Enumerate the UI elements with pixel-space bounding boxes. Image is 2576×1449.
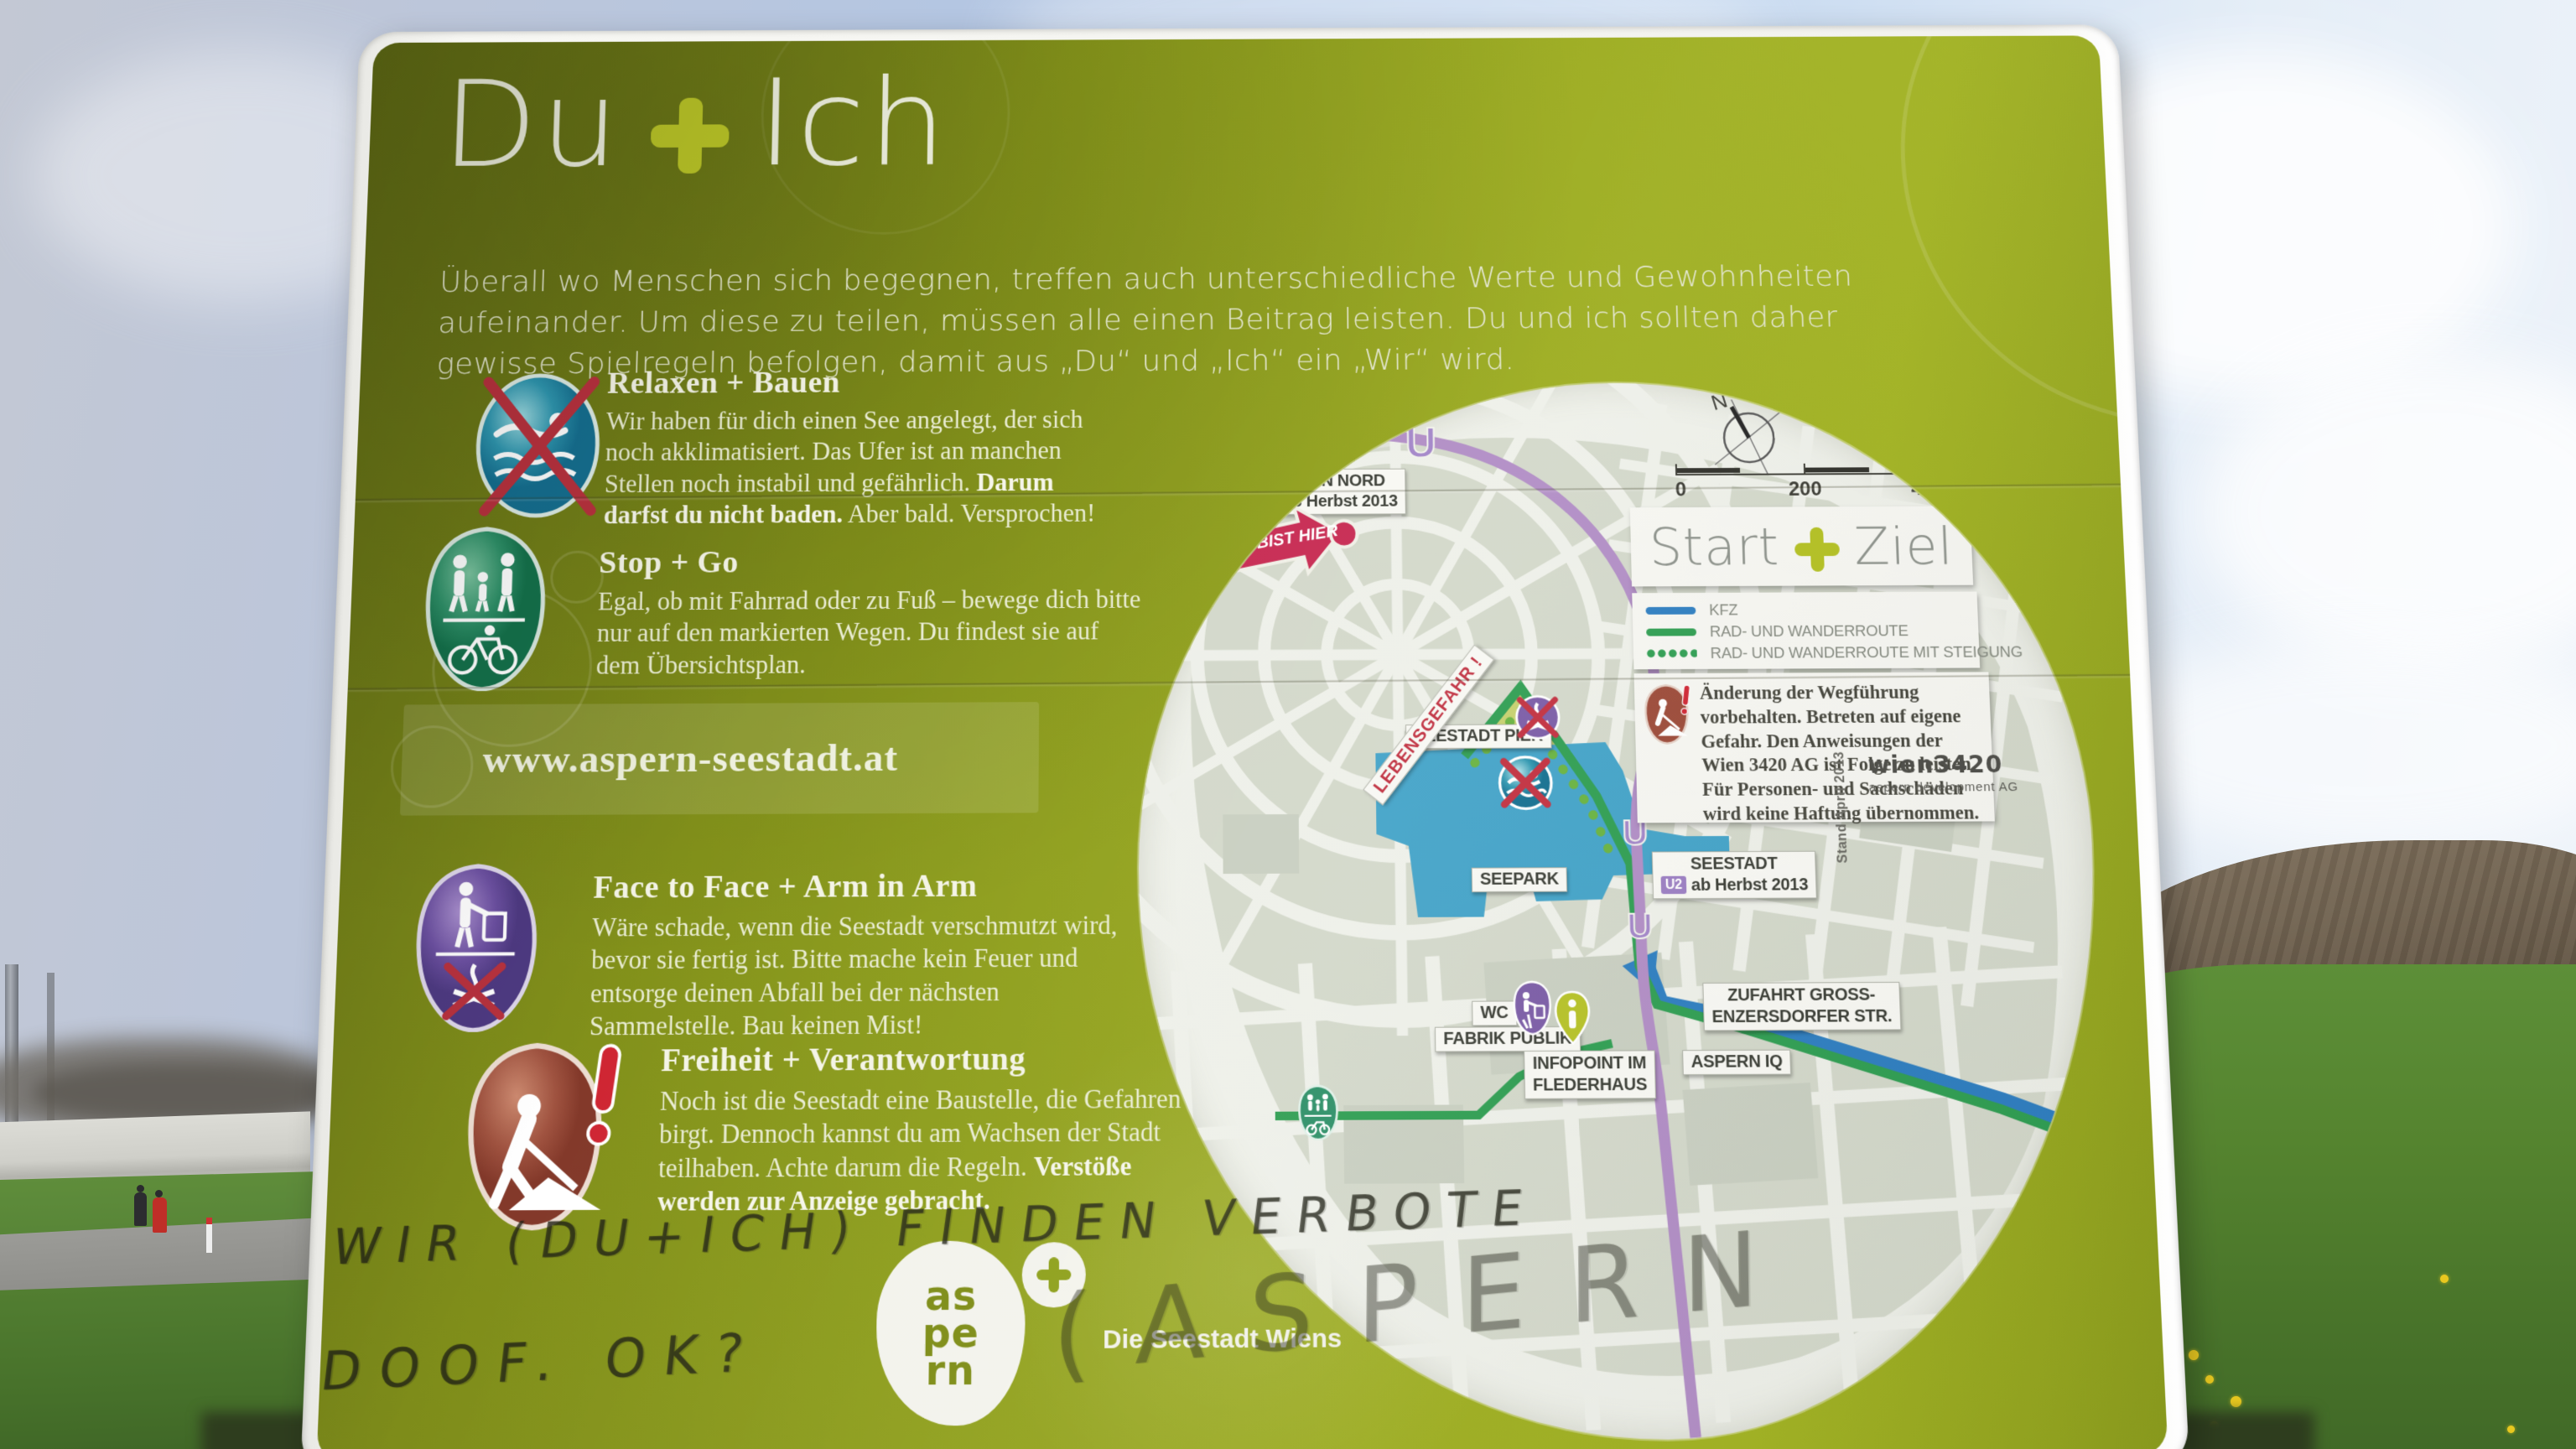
route-line-swatch xyxy=(1646,628,1696,636)
no-littering-no-fire-icon xyxy=(392,862,558,1032)
legend-label: RAD- UND WANDERROUTE MIT STEIGUNG xyxy=(1710,643,2023,662)
section-body: Wäre schade, wenn die Seestadt verschmut… xyxy=(589,909,1134,1043)
u-station-icon: U xyxy=(1627,906,1654,947)
plus-icon xyxy=(1794,527,1840,572)
legend-routes-box: KFZ RAD- UND WANDERROUTE RAD- UND WANDER… xyxy=(1632,592,1980,670)
section-relaxen-bauen: Relaxen + Bauen Wir haben für dich einen… xyxy=(603,363,1143,531)
map-scale-bar: 0 200 400 xyxy=(1675,463,1935,503)
wien3420-logo: wien3420 xyxy=(1867,750,2018,779)
section-stop-go: Stop + Go Egal, ob mit Fahrrad oder zu F… xyxy=(595,543,1182,682)
station-name: SEESTADT xyxy=(1690,854,1778,875)
legend-label: RAD- UND WANDERROUTE xyxy=(1710,621,1909,641)
label-infopoint: INFOPOINT IM FLEDERHAUS xyxy=(1524,1050,1656,1099)
pedestrian-red-jacket xyxy=(153,1197,167,1233)
label-seepark: SEEPARK xyxy=(1472,867,1568,892)
title-du: Du xyxy=(439,53,624,197)
pedestrian xyxy=(134,1192,147,1226)
delineator-post xyxy=(206,1218,212,1253)
info-sign-board: Du Ich Überall wo Menschen sich begegnen… xyxy=(316,35,2168,1449)
legend-label: KFZ xyxy=(1709,601,1738,620)
wien3420-subtitle: aspern development AG xyxy=(1868,780,2018,795)
label-seestadt: SEESTADT U2ab Herbst 2013 xyxy=(1652,851,1817,900)
developer-credit: wien3420 aspern development AG xyxy=(1867,750,2018,795)
route-dots-swatch xyxy=(1647,649,1697,657)
graffiti-line-2: DOOF. OK? xyxy=(317,1322,764,1403)
label-zufahrt: ZUFAHRT GROSS- ENZERSDORFER STR. xyxy=(1702,982,1901,1031)
photo-scene: Du Ich Überall wo Menschen sich begegnen… xyxy=(0,0,2576,1449)
body-text: Egal, ob mit Fahrrad oder zu Fuß – beweg… xyxy=(595,585,1140,679)
legend-ziel: Ziel xyxy=(1853,516,1955,576)
section-heading: Face to Face + Arm in Arm xyxy=(593,866,1176,906)
family-and-bike-icon xyxy=(399,525,569,691)
logo-text: rn xyxy=(925,1352,975,1389)
scale-200: 200 xyxy=(1789,478,1822,501)
u2-badge: U2 xyxy=(1661,876,1687,894)
legend-title-box: Start Ziel xyxy=(1630,506,1973,587)
family-and-bike-icon xyxy=(1296,1084,1341,1140)
aspern-logo-blob: as pe rn xyxy=(875,1240,1026,1426)
body-text: Aber bald. Versprochen! xyxy=(843,500,1095,529)
disclaimer-box: Änderung der Wegführung vorbehalten. Bet… xyxy=(1634,672,1995,823)
section-heading: Stop + Go xyxy=(599,543,1182,581)
scale-400: 400 xyxy=(1911,478,1945,501)
title-ich: Ich xyxy=(756,51,950,195)
website-url: www.aspern-seestadt.at xyxy=(401,735,898,783)
station-opening: U2ab Herbst 2013 xyxy=(1661,875,1809,896)
station-name: ASPERN NORD xyxy=(1265,471,1385,492)
section-body: Egal, ob mit Fahrrad oder zu Fuß – beweg… xyxy=(595,584,1148,682)
label-aspern-iq: ASPERN IQ xyxy=(1682,1050,1791,1076)
info-sign-frame: Du Ich Überall wo Menschen sich begegnen… xyxy=(300,24,2189,1449)
no-fire-icon xyxy=(1514,693,1561,740)
legend-item-steigung: RAD- UND WANDERROUTE MIT STEIGUNG xyxy=(1642,641,1980,665)
no-swimming-icon xyxy=(1497,754,1555,812)
legend-item-wanderroute: RAD- UND WANDERROUTE xyxy=(1641,620,1979,642)
scale-0: 0 xyxy=(1675,479,1687,501)
plus-icon xyxy=(650,98,730,174)
litter-disposal-icon xyxy=(1510,980,1554,1037)
section-face-to-face: Face to Face + Arm in Arm Wäre schade, w… xyxy=(589,866,1176,1043)
infopoint-icon xyxy=(1551,990,1593,1047)
section-heading: Relaxen + Bauen xyxy=(607,363,1144,401)
legend-item-kfz: KFZ xyxy=(1640,598,1977,621)
section-body: Wir haben für dich einen See angelegt, d… xyxy=(603,404,1118,532)
website-band: www.aspern-seestadt.at xyxy=(400,702,1039,816)
body-text: Wäre schade, wenn die Seestadt verschmut… xyxy=(589,911,1117,1041)
construction-warning-icon xyxy=(1641,682,1695,747)
kfz-line-swatch xyxy=(1646,606,1696,614)
sign-title: Du Ich xyxy=(439,51,950,197)
u-station-icon: U xyxy=(1405,419,1437,466)
legend-start: Start xyxy=(1649,517,1780,577)
